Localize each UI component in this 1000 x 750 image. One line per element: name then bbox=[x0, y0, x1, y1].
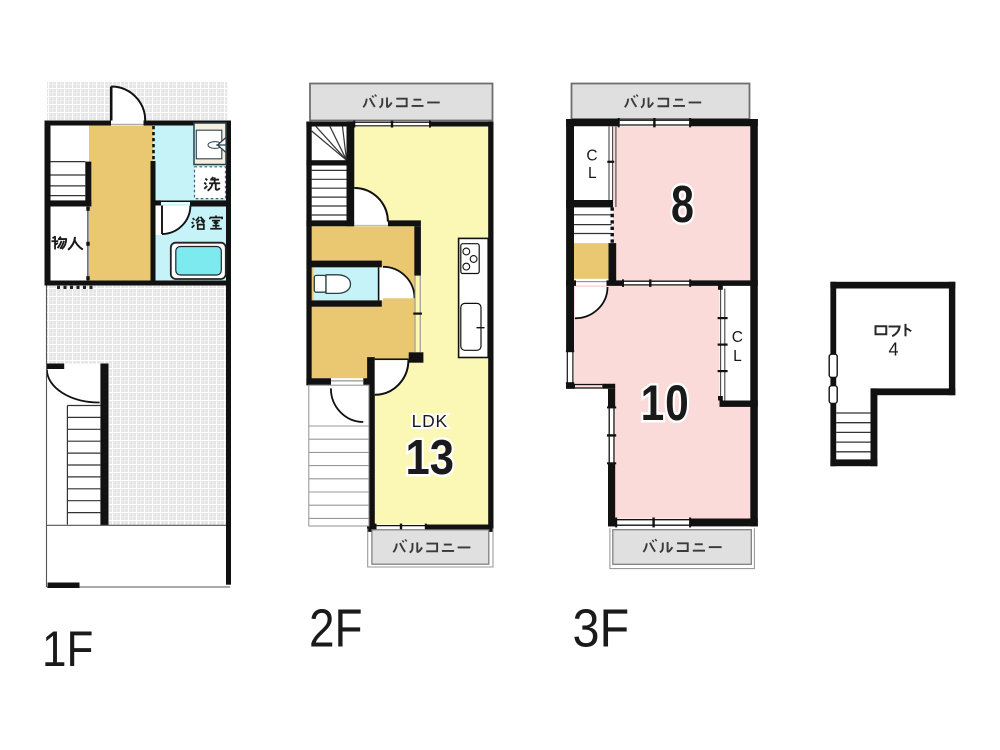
svg-text:10: 10 bbox=[641, 375, 690, 431]
svg-text:L: L bbox=[733, 348, 742, 365]
svg-text:LDK: LDK bbox=[412, 411, 448, 431]
svg-text:C: C bbox=[586, 148, 597, 165]
svg-text:1F: 1F bbox=[42, 620, 93, 676]
svg-text:8: 8 bbox=[671, 176, 694, 233]
svg-text:L: L bbox=[588, 165, 597, 182]
svg-text:4: 4 bbox=[888, 340, 898, 360]
svg-text:13: 13 bbox=[406, 430, 455, 485]
svg-text:3F: 3F bbox=[573, 597, 630, 658]
svg-text:C: C bbox=[732, 329, 743, 346]
svg-text:2F: 2F bbox=[309, 598, 363, 658]
